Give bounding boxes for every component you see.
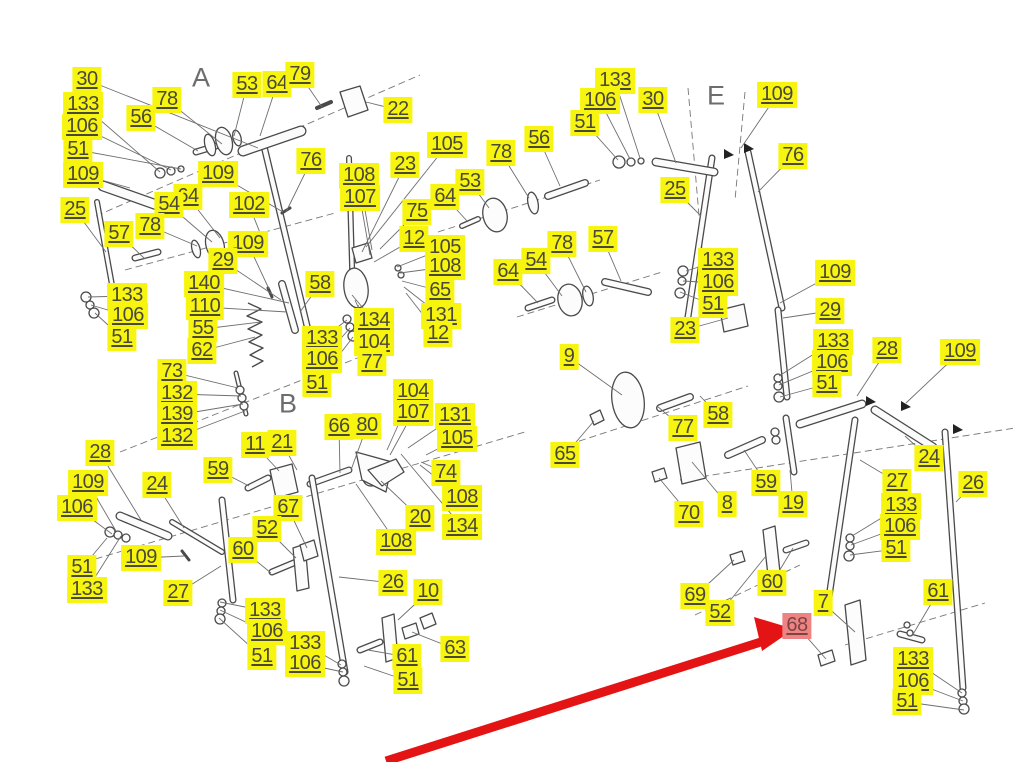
part-label-107[interactable]: 107: [340, 185, 380, 211]
part-label-61[interactable]: 61: [923, 579, 952, 605]
part-label-61[interactable]: 61: [392, 644, 421, 670]
part-label-27[interactable]: 27: [882, 469, 911, 495]
part-label-106[interactable]: 106: [285, 651, 325, 677]
part-label-24[interactable]: 24: [914, 445, 943, 471]
part-label-29[interactable]: 29: [815, 298, 844, 324]
part-label-109[interactable]: 109: [68, 470, 108, 496]
part-label-12[interactable]: 12: [423, 321, 452, 347]
part-label-109[interactable]: 109: [121, 545, 161, 571]
part-label-51[interactable]: 51: [393, 668, 422, 694]
part-label-109[interactable]: 109: [198, 161, 238, 187]
part-label-70[interactable]: 70: [674, 501, 703, 527]
part-label-51[interactable]: 51: [881, 536, 910, 562]
part-label-58[interactable]: 58: [703, 402, 732, 428]
part-label-78[interactable]: 78: [152, 87, 181, 113]
part-label-51[interactable]: 51: [107, 325, 136, 351]
part-label-106[interactable]: 106: [247, 619, 287, 645]
part-label-25[interactable]: 25: [60, 197, 89, 223]
part-label-51[interactable]: 51: [892, 689, 921, 715]
part-label-108[interactable]: 108: [442, 485, 482, 511]
part-label-60[interactable]: 60: [757, 570, 786, 596]
part-label-109[interactable]: 109: [815, 260, 855, 286]
part-label-54[interactable]: 54: [521, 248, 550, 274]
part-label-57[interactable]: 57: [588, 226, 617, 252]
part-label-77[interactable]: 77: [668, 415, 697, 441]
part-label-52[interactable]: 52: [705, 600, 734, 626]
part-label-109[interactable]: 109: [63, 162, 103, 188]
part-label-56[interactable]: 56: [524, 126, 553, 152]
part-label-76[interactable]: 76: [778, 143, 807, 169]
part-label-51[interactable]: 51: [247, 644, 276, 670]
part-label-26[interactable]: 26: [378, 570, 407, 596]
part-label-107[interactable]: 107: [393, 400, 433, 426]
part-label-108[interactable]: 108: [425, 254, 465, 280]
part-label-51[interactable]: 51: [698, 292, 727, 318]
part-label-51[interactable]: 51: [812, 371, 841, 397]
part-label-60[interactable]: 60: [228, 537, 257, 563]
part-label-59[interactable]: 59: [203, 457, 232, 483]
part-label-65[interactable]: 65: [425, 278, 454, 304]
part-label-59[interactable]: 59: [751, 470, 780, 496]
part-label-65[interactable]: 65: [550, 442, 579, 468]
part-label-79[interactable]: 79: [285, 62, 314, 88]
part-label-24[interactable]: 24: [142, 472, 171, 498]
part-label-21[interactable]: 21: [267, 430, 296, 456]
part-label-30[interactable]: 30: [638, 87, 667, 113]
part-label-58[interactable]: 58: [305, 271, 334, 297]
part-label-108[interactable]: 108: [376, 529, 416, 555]
part-label-20[interactable]: 20: [405, 505, 434, 531]
part-label-19[interactable]: 19: [778, 491, 807, 517]
part-label-64[interactable]: 64: [493, 259, 522, 285]
part-label-132[interactable]: 132: [157, 424, 197, 450]
part-label-53[interactable]: 53: [455, 169, 484, 195]
part-label-109[interactable]: 109: [757, 82, 797, 108]
part-label-63[interactable]: 63: [440, 636, 469, 662]
part-label-109[interactable]: 109: [940, 339, 980, 365]
part-label-80[interactable]: 80: [352, 413, 381, 439]
part-label-51[interactable]: 51: [63, 137, 92, 163]
part-label-51[interactable]: 51: [570, 110, 599, 136]
part-label-25[interactable]: 25: [660, 177, 689, 203]
part-label-8[interactable]: 8: [718, 491, 737, 517]
parts-diagram-canvas: ABE3013310651109255678536479227610810723…: [0, 0, 1025, 762]
part-label-53[interactable]: 53: [232, 72, 261, 98]
part-label-10[interactable]: 10: [413, 579, 442, 605]
part-label-62[interactable]: 62: [187, 338, 216, 364]
part-label-57[interactable]: 57: [104, 221, 133, 247]
part-label-102[interactable]: 102: [229, 192, 269, 218]
part-label-106[interactable]: 106: [302, 347, 342, 373]
part-label-134[interactable]: 134: [442, 514, 482, 540]
part-label-78[interactable]: 78: [486, 140, 515, 166]
part-label-26[interactable]: 26: [958, 471, 987, 497]
part-label-56[interactable]: 56: [126, 105, 155, 131]
part-label-30[interactable]: 30: [72, 67, 101, 93]
part-label-23[interactable]: 23: [670, 317, 699, 343]
part-label-7[interactable]: 7: [814, 590, 833, 616]
part-label-74[interactable]: 74: [431, 460, 460, 486]
part-label-27[interactable]: 27: [163, 580, 192, 606]
part-label-105[interactable]: 105: [427, 132, 467, 158]
part-label-77[interactable]: 77: [357, 350, 386, 376]
part-label-23[interactable]: 23: [390, 152, 419, 178]
highlighted-part-label-68[interactable]: 68: [782, 613, 811, 639]
part-label-78[interactable]: 78: [547, 231, 576, 257]
part-label-75[interactable]: 75: [402, 199, 431, 225]
part-label-28[interactable]: 28: [85, 440, 114, 466]
part-label-28[interactable]: 28: [872, 337, 901, 363]
part-label-51[interactable]: 51: [302, 371, 331, 397]
part-label-133[interactable]: 133: [67, 577, 107, 603]
section-letter-a: A: [192, 63, 210, 94]
part-label-22[interactable]: 22: [383, 97, 412, 123]
part-label-78[interactable]: 78: [135, 213, 164, 239]
part-label-9[interactable]: 9: [560, 344, 579, 370]
part-label-11[interactable]: 11: [241, 432, 269, 458]
part-label-76[interactable]: 76: [296, 148, 325, 174]
section-letter-e: E: [707, 81, 725, 112]
part-label-66[interactable]: 66: [324, 414, 353, 440]
part-label-105[interactable]: 105: [437, 426, 477, 452]
part-label-106[interactable]: 106: [57, 495, 97, 521]
section-letter-b: B: [279, 389, 297, 420]
